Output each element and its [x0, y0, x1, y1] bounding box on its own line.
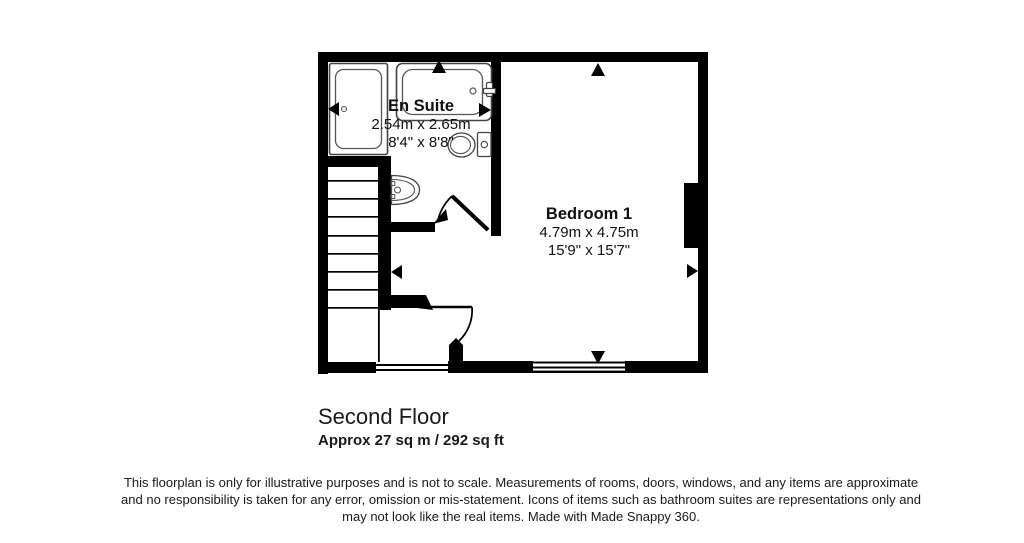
- window-line: [374, 369, 449, 371]
- window-line: [533, 362, 625, 364]
- window-line: [533, 367, 625, 369]
- wall-basin: [391, 222, 435, 232]
- chimney-breast: [684, 183, 698, 248]
- stair-tread: [328, 235, 378, 237]
- wall-bottom-left-stub: [318, 362, 376, 373]
- wall-stairwell: [378, 156, 391, 310]
- stair-tread: [328, 216, 378, 218]
- bedroom-name: Bedroom 1: [546, 205, 632, 223]
- stair-tread: [328, 180, 378, 182]
- floorplan-page: En Suite 2.54m x 2.65m 8'4" x 8'8" Bedro…: [0, 0, 1024, 543]
- room-labels: En Suite 2.54m x 2.65m 8'4" x 8'8" Bedro…: [371, 97, 638, 259]
- measurement-arrow-icon-up-bedroom: [591, 63, 605, 76]
- disclaimer-line: may not look like the real items. Made w…: [91, 508, 951, 525]
- floorplan-drawing: En Suite 2.54m x 2.65m 8'4" x 8'8" Bedro…: [0, 0, 1024, 543]
- stair-tread: [328, 198, 378, 200]
- door-swing-arc: [459, 307, 472, 341]
- wall-bottom-right: [625, 361, 708, 373]
- window-landing: [374, 364, 449, 371]
- measurement-arrow-icon-right-bedroom: [687, 264, 698, 278]
- disclaimer: This floorplan is only for illustrative …: [91, 474, 951, 525]
- stairwell-boundary-line: [378, 310, 380, 362]
- staircase-icon: [328, 180, 380, 362]
- measurement-arrow-icon-left-landing: [391, 265, 402, 279]
- toilet-icon: [448, 133, 491, 158]
- stair-tread: [328, 289, 378, 291]
- stair-tread: [328, 253, 378, 255]
- wash-basin-icon: [391, 176, 420, 205]
- wall-top: [318, 52, 708, 62]
- ensuite-dimensions-imperial: 8'4" x 8'8": [388, 134, 454, 151]
- disclaimer-line: This floorplan is only for illustrative …: [91, 474, 951, 491]
- bath-tap: [484, 89, 496, 94]
- disclaimer-line: and no responsibility is taken for any e…: [91, 491, 951, 508]
- door-jamb-stub: [449, 338, 463, 373]
- wall-ensuite-divider: [491, 52, 501, 236]
- floor-area: Approx 27 sq m / 292 sq ft: [318, 432, 504, 449]
- wall-right: [698, 52, 708, 373]
- stair-tread: [328, 271, 378, 273]
- toilet-flush: [481, 141, 487, 147]
- stair-tread: [328, 307, 378, 309]
- door-ensuite: [433, 196, 488, 230]
- window-line: [374, 364, 449, 366]
- bedroom-dimensions-metric: 4.79m x 4.75m: [539, 224, 638, 241]
- ensuite-name: En Suite: [388, 97, 454, 115]
- door-leaf: [452, 196, 488, 230]
- bedroom-dimensions-imperial: 15'9" x 15'7": [548, 242, 630, 259]
- window-line: [533, 371, 625, 373]
- floor-title: Second Floor: [318, 404, 449, 430]
- wall-left: [318, 52, 328, 374]
- ensuite-dimensions-metric: 2.54m x 2.65m: [371, 116, 470, 133]
- window-bedroom: [533, 362, 625, 374]
